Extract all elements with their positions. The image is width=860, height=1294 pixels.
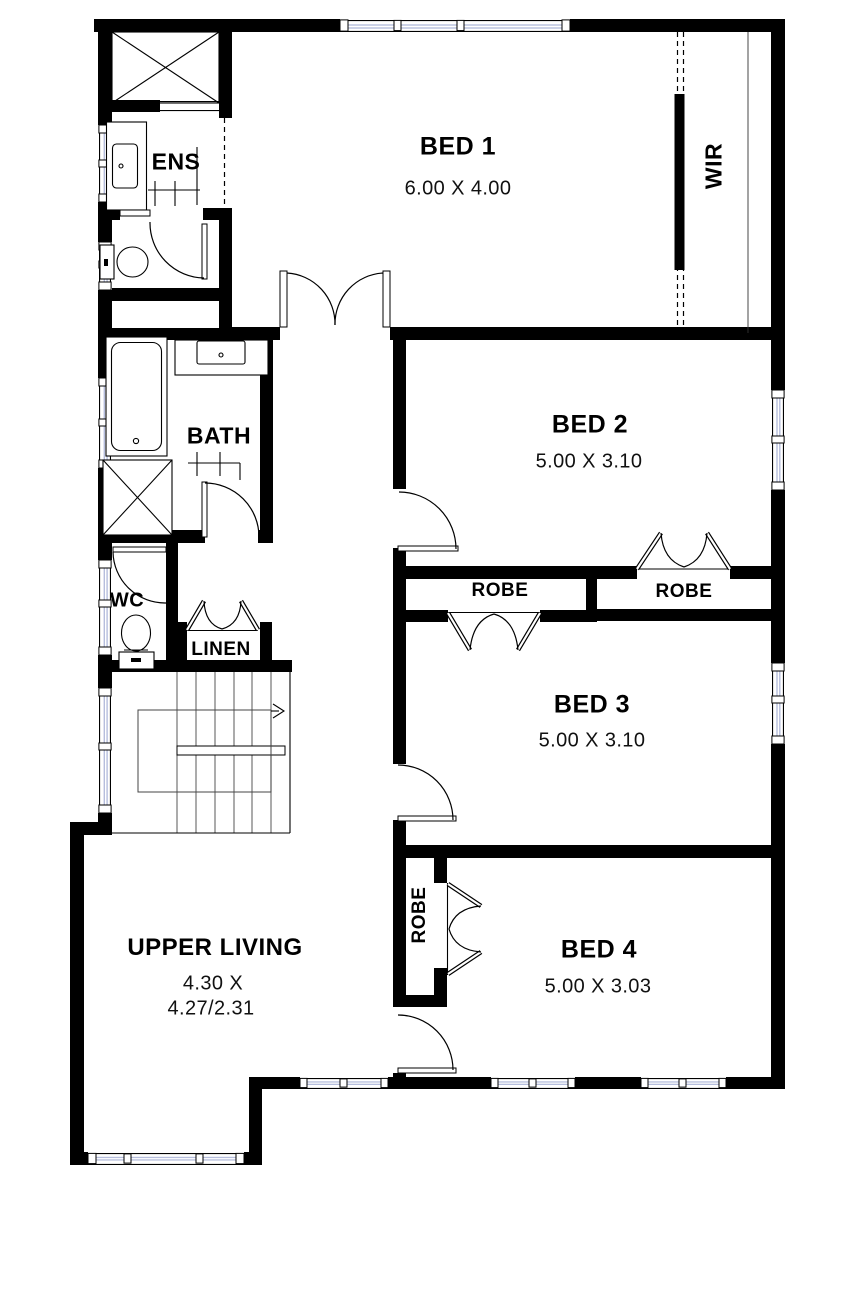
bed4-door <box>398 1015 456 1073</box>
staircase <box>112 672 290 833</box>
window <box>771 390 785 490</box>
upper-living-dimensions-2: 4.27/2.31 <box>167 998 254 1021</box>
robe-bed3-bifold <box>448 613 540 651</box>
window <box>300 1077 388 1089</box>
toilet-wc-lower <box>119 615 154 669</box>
window <box>98 688 112 813</box>
bed3-door <box>398 765 456 821</box>
void-box <box>112 32 219 103</box>
wir-rail <box>675 94 685 270</box>
fixtures <box>100 122 268 669</box>
window <box>491 1077 575 1089</box>
toilet-wc-upper <box>100 245 148 279</box>
floor-plan: BED 1 6.00 X 4.00 BED 2 5.00 X 3.10 BED … <box>0 0 860 1294</box>
robe-bed3-label: ROBE <box>472 580 529 602</box>
bath-label: BATH <box>187 423 251 450</box>
shower-bath <box>103 460 172 535</box>
bed3-dimensions: 5.00 X 3.10 <box>539 730 646 753</box>
bed1-label: BED 1 <box>420 133 496 162</box>
robe-bed4-bifold <box>448 883 482 975</box>
bed4-dimensions: 5.00 X 3.03 <box>545 976 652 999</box>
window <box>771 663 785 744</box>
bed1-dimensions: 6.00 X 4.00 <box>405 178 512 201</box>
robe-bed2-bifold <box>637 533 730 569</box>
bath-vanity <box>175 340 268 375</box>
bed2-door <box>398 492 458 551</box>
wc-label: WC <box>110 590 144 613</box>
window <box>641 1077 726 1089</box>
bed2-dimensions: 5.00 X 3.10 <box>536 451 643 474</box>
linen-bifold <box>187 601 258 631</box>
robe-bed4-label: ROBE <box>409 887 431 944</box>
upper-living-label: UPPER LIVING <box>127 934 302 962</box>
window <box>88 1152 244 1165</box>
bath-door <box>202 482 259 537</box>
robe-bed2-label: ROBE <box>656 581 713 603</box>
ens-label: ENS <box>152 149 201 176</box>
bed3-label: BED 3 <box>554 691 630 720</box>
wir-label: WIR <box>701 143 728 189</box>
window <box>340 19 570 32</box>
stair-landing-edge <box>177 746 285 755</box>
bed2-label: BED 2 <box>552 411 628 440</box>
bath-shower-taps <box>188 452 240 480</box>
bathtub <box>106 337 167 456</box>
ens-vanity <box>107 122 147 210</box>
upper-living-dimensions-1: 4.30 X <box>183 973 243 996</box>
bed1-double-door <box>280 271 390 327</box>
bed4-label: BED 4 <box>561 936 637 965</box>
linen-label: LINEN <box>191 639 251 661</box>
